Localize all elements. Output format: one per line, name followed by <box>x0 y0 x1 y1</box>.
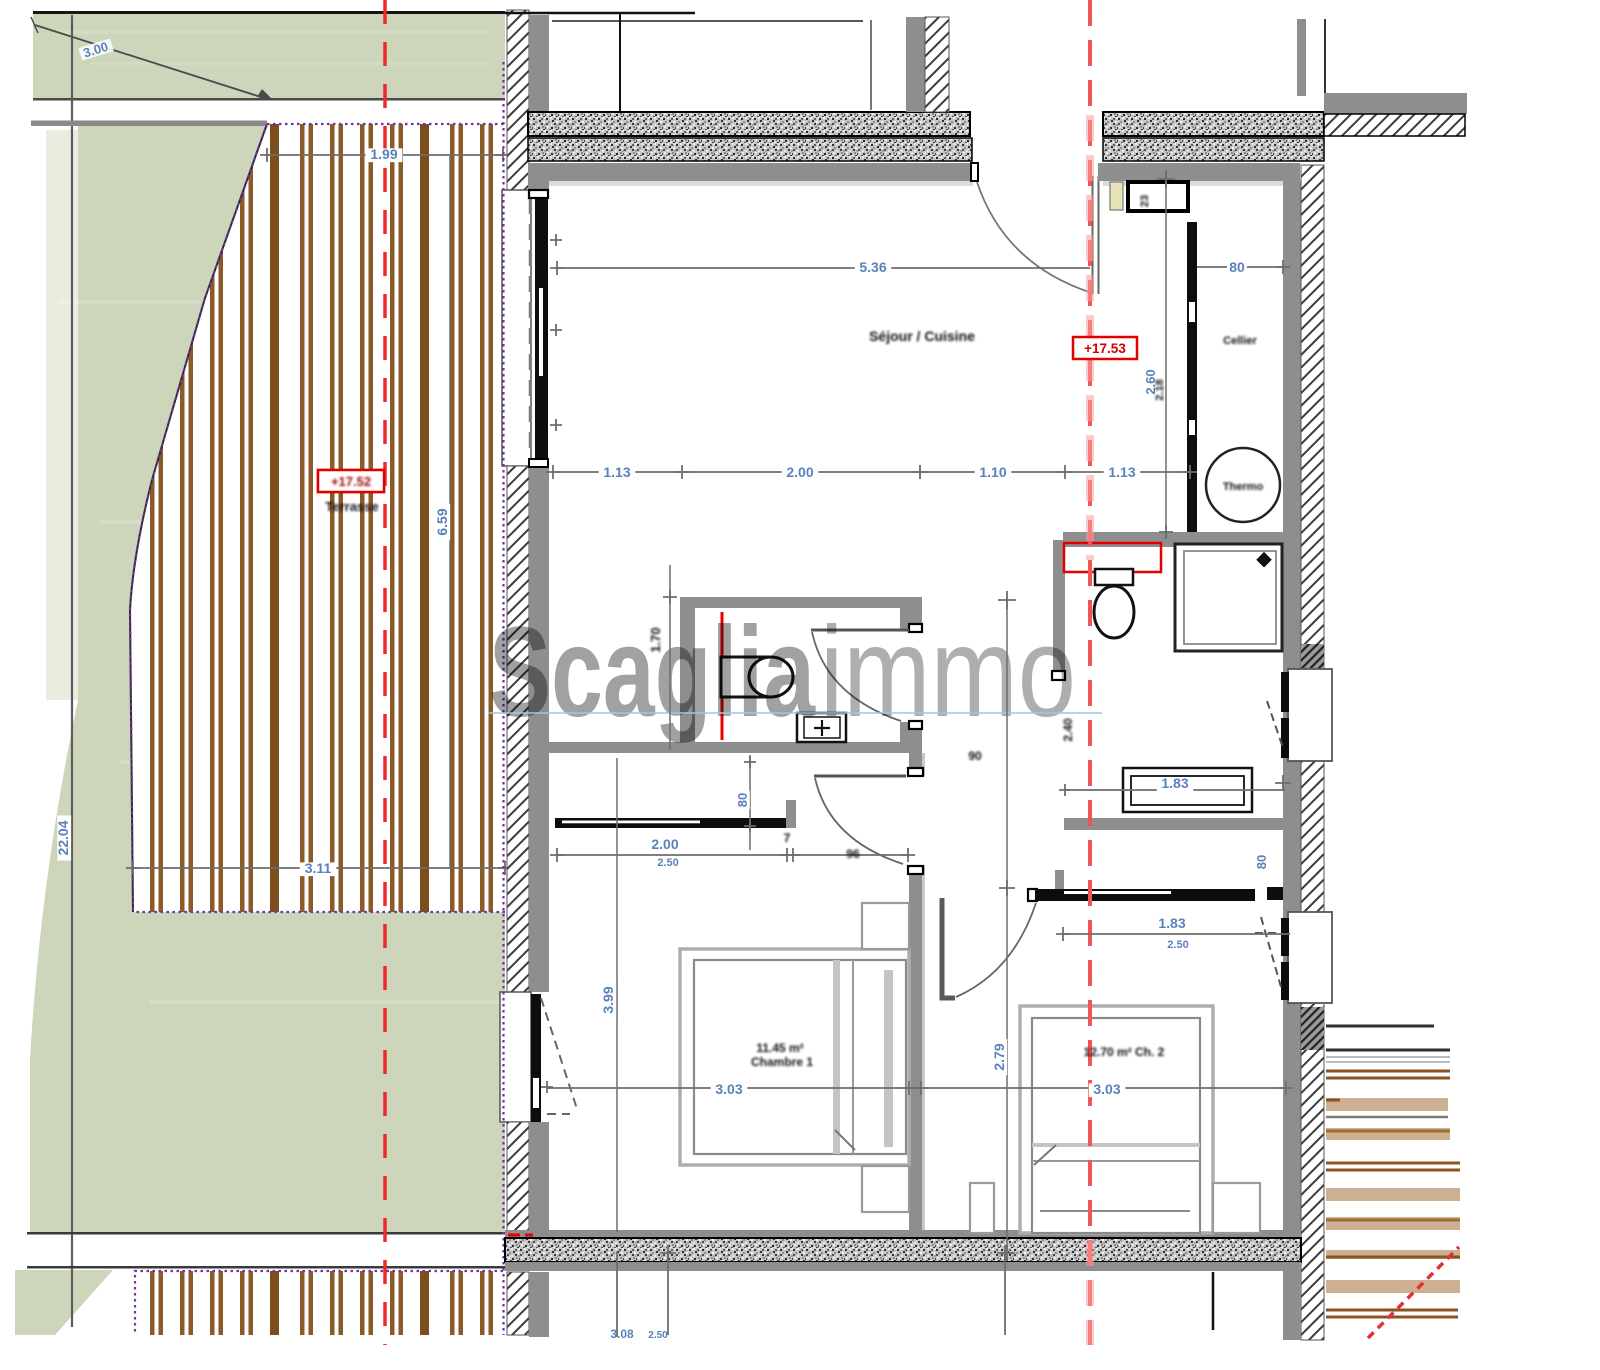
svg-text:2.00: 2.00 <box>651 836 678 852</box>
svg-text:11.45 m²: 11.45 m² <box>756 1041 803 1055</box>
svg-text:Cellier: Cellier <box>1223 335 1257 347</box>
svg-text:3.08: 3.08 <box>610 1327 634 1341</box>
svg-text:2.50: 2.50 <box>648 1330 668 1341</box>
svg-text:+17.52: +17.52 <box>331 474 371 489</box>
svg-text:7: 7 <box>784 831 791 845</box>
svg-text:12.70 m² Ch. 2: 12.70 m² Ch. 2 <box>1084 1045 1165 1059</box>
svg-text:2.18: 2.18 <box>1154 379 1166 400</box>
svg-text:80: 80 <box>1229 259 1245 275</box>
svg-text:5.36: 5.36 <box>859 259 886 275</box>
svg-text:3.11: 3.11 <box>305 860 332 876</box>
svg-text:1.13: 1.13 <box>1108 464 1135 480</box>
svg-text:96: 96 <box>846 847 860 861</box>
svg-text:80: 80 <box>1254 855 1269 869</box>
svg-text:Terrasse: Terrasse <box>325 499 378 514</box>
svg-text:+17.53: +17.53 <box>1084 341 1126 356</box>
svg-text:3.03: 3.03 <box>715 1081 742 1097</box>
svg-text:1.10: 1.10 <box>979 464 1006 480</box>
svg-text:Scaglia: Scaglia <box>489 601 816 744</box>
svg-text:90: 90 <box>968 749 982 763</box>
svg-text:23: 23 <box>1139 195 1151 207</box>
svg-text:3.03: 3.03 <box>1093 1081 1120 1097</box>
svg-text:22.04: 22.04 <box>55 820 71 855</box>
svg-text:2.40: 2.40 <box>1061 718 1075 742</box>
svg-text:2.79: 2.79 <box>991 1043 1007 1070</box>
svg-text:Chambre 1: Chambre 1 <box>751 1055 813 1069</box>
svg-text:1.13: 1.13 <box>603 464 630 480</box>
svg-text:2.50: 2.50 <box>657 857 678 869</box>
svg-text:2.00: 2.00 <box>786 464 813 480</box>
svg-text:1.83: 1.83 <box>1161 775 1188 791</box>
svg-text:6.59: 6.59 <box>434 508 450 535</box>
svg-text:1.99: 1.99 <box>370 146 397 162</box>
svg-text:3.99: 3.99 <box>600 986 616 1013</box>
svg-text:Séjour / Cuisine: Séjour / Cuisine <box>869 328 975 344</box>
svg-text:2.50: 2.50 <box>1167 939 1188 951</box>
svg-text:immo: immo <box>820 601 1076 744</box>
svg-text:1.83: 1.83 <box>1158 915 1185 931</box>
svg-text:1.70: 1.70 <box>648 627 663 652</box>
svg-text:Thermo: Thermo <box>1223 481 1264 493</box>
svg-text:80: 80 <box>735 793 750 807</box>
